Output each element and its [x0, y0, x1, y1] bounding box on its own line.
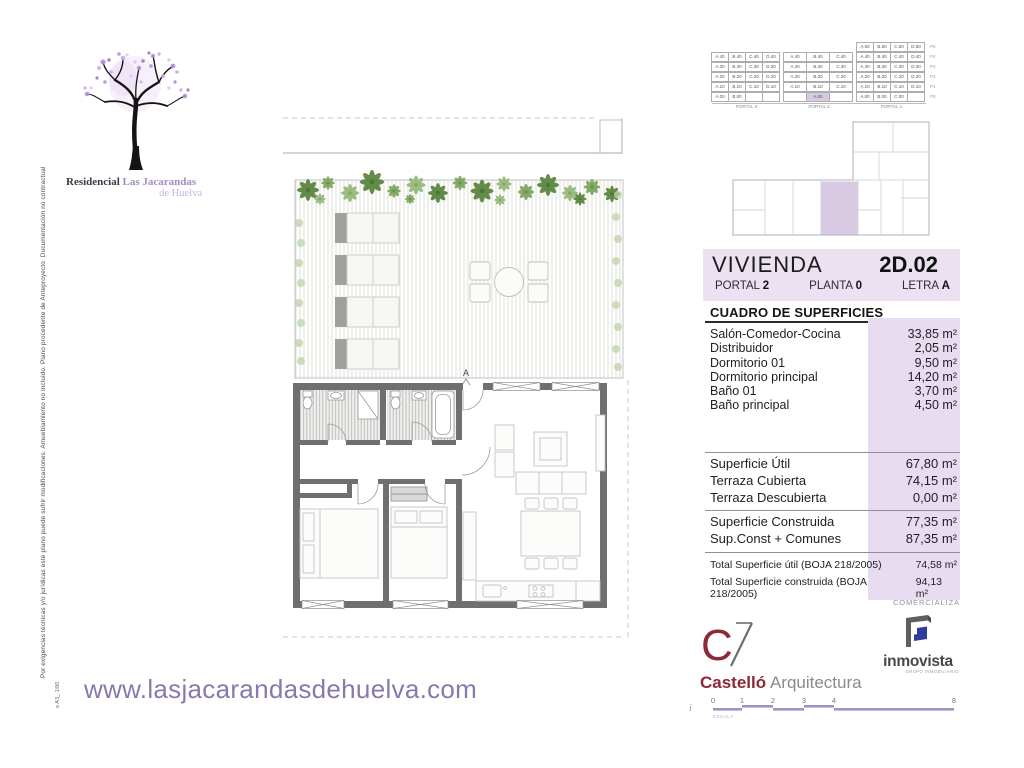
- svg-text:2: 2: [771, 696, 775, 705]
- arquitectura-name: Arquitectura: [770, 673, 862, 692]
- totals: Total Superficie útil (BOJA 218/2005)74,…: [710, 559, 957, 592]
- unit-cell: [745, 92, 763, 102]
- unit-cell: B.30: [873, 62, 891, 72]
- inmovista-mark-icon: [900, 612, 936, 650]
- unit-cell: [783, 42, 807, 52]
- unit-cell: [829, 92, 853, 102]
- floor-label: P0: [930, 92, 936, 102]
- table-row: Superficie Útil67,80 m²: [710, 456, 957, 473]
- unit-cell: D.40: [907, 52, 925, 62]
- unit-cell: D.30: [907, 62, 925, 72]
- logo-text: Residencial Las Jacarandas: [66, 176, 208, 188]
- unit-cell: A.20: [856, 72, 874, 82]
- legal-disclaimer: Por exigencias técnicas y/o jurídicas es…: [40, 78, 47, 678]
- floor-label: P4: [930, 52, 936, 62]
- highlighted-unit: [821, 182, 858, 235]
- useful-surface-summary: Superficie Útil67,80 m² Terraza Cubierta…: [710, 456, 957, 507]
- table-row: Terraza Cubierta74,15 m²: [710, 473, 957, 490]
- unit-cell: A.50: [856, 42, 874, 52]
- vivienda-code: 2D.02: [879, 252, 938, 278]
- website-url: www.lasjacarandasdehuelva.com: [84, 674, 477, 705]
- unit-cell: [783, 92, 807, 102]
- unit-cell: [806, 42, 830, 52]
- unit-cell: A.30: [711, 62, 729, 72]
- unit-cell: D.20: [907, 72, 925, 82]
- table-row: Total Superficie útil (BOJA 218/2005)74,…: [710, 559, 957, 576]
- table-row: Dormitorio principal14,20 m²: [710, 370, 957, 384]
- unit-cell: [711, 42, 729, 52]
- divider: [705, 452, 960, 453]
- floor-plan-drawing: A: [270, 95, 650, 655]
- unit-cell: A.40: [783, 52, 807, 62]
- unit-cell: A.00: [856, 92, 874, 102]
- svg-text:1: 1: [740, 696, 744, 705]
- unit-cell: B.30: [728, 62, 746, 72]
- residencial-logo: Residencial Las Jacarandas de Huelva: [66, 48, 208, 199]
- room-surfaces: Salón-Comedor-Cocina33,85 m² Distribuido…: [710, 327, 957, 413]
- table-row: Terraza Descubierta0,00 m²: [710, 490, 957, 507]
- svg-text:3: 3: [802, 696, 806, 705]
- inmovista-logo: inmovista GRUPO INMOBILIARIO: [874, 612, 962, 674]
- unit-cell: B.40: [728, 52, 746, 62]
- portal-label: PORTAL 1: [857, 104, 926, 109]
- floor-label: P3: [930, 62, 936, 72]
- unit-cell: C.20: [829, 72, 853, 82]
- unit-cell: C.00: [890, 92, 908, 102]
- table-row: Salón-Comedor-Cocina33,85 m²: [710, 327, 957, 341]
- table-row: Dormitorio 019,50 m²: [710, 356, 957, 370]
- unit-cell: A.00: [806, 92, 830, 102]
- unit-cell: B.20: [873, 72, 891, 82]
- unit-cell: B.50: [873, 42, 891, 52]
- unit-cell: [762, 92, 780, 102]
- unit-cell: C.50: [890, 42, 908, 52]
- unit-cell: C.20: [745, 72, 763, 82]
- portal-label: PORTAL 3: [712, 104, 781, 109]
- unit-cell: B.20: [806, 72, 830, 82]
- unit-cell: C.40: [829, 52, 853, 62]
- unit-cell: [829, 42, 853, 52]
- unit-cell: A.40: [711, 52, 729, 62]
- svg-text:C: C: [701, 621, 733, 668]
- unit-cell: [762, 42, 780, 52]
- table-row: Total Superficie construida (BOJA 218/20…: [710, 576, 957, 593]
- floor-label: P1: [930, 82, 936, 92]
- floor-plan-sheet: Por exigencias técnicas y/o jurídicas es…: [0, 0, 1024, 768]
- svg-text:8: 8: [952, 696, 956, 705]
- unit-cell: C.10: [829, 82, 853, 92]
- planta-group: PLANTA 0: [809, 280, 862, 292]
- svg-text:i: i: [689, 703, 692, 714]
- unit-cell: C.30: [829, 62, 853, 72]
- table-row: Sup.Const + Comunes87,35 m²: [710, 531, 957, 548]
- unit-cell: B.10: [806, 82, 830, 92]
- unit-cell: A.30: [856, 62, 874, 72]
- unit-cell: B.40: [873, 52, 891, 62]
- unit-cell: D.20: [762, 72, 780, 82]
- floor-label: P2: [930, 72, 936, 82]
- unit-cell: D.40: [762, 52, 780, 62]
- table-row: Baño principal4,50 m²: [710, 398, 957, 412]
- unit-cell: B.40: [806, 52, 830, 62]
- unit-cell: A.30: [783, 62, 807, 72]
- vivienda-label: VIVIENDA: [712, 252, 823, 278]
- table-row: Distribuidor2,05 m²: [710, 341, 957, 355]
- unit-cell: C.40: [890, 52, 908, 62]
- unit-cell: A.20: [783, 72, 807, 82]
- letra-group: LETRA A: [902, 280, 950, 292]
- unit-cell: C.10: [890, 82, 908, 92]
- unit-cell: B.10: [873, 82, 891, 92]
- terrace: [295, 180, 623, 378]
- logo-subtext: de Huelva: [66, 188, 208, 199]
- table-row: Superficie Construida77,35 m²: [710, 514, 957, 531]
- surfaces-table-title: CUADRO DE SUPERFICIES: [710, 305, 883, 320]
- unit-cell: D.10: [762, 82, 780, 92]
- jacaranda-tree-icon: [75, 48, 199, 174]
- castello-logo: C Castelló Arquitectura: [700, 620, 878, 693]
- unit-cell: B.30: [806, 62, 830, 72]
- unit-cell: B.00: [873, 92, 891, 102]
- unit-cell: C.10: [745, 82, 763, 92]
- built-surface-summary: Superficie Construida77,35 m² Sup.Const …: [710, 514, 957, 548]
- unit-header: VIVIENDA 2D.02 PORTAL 2 PLANTA 0 LETRA A: [703, 249, 960, 301]
- unit-cell: [728, 42, 746, 52]
- svg-text:4: 4: [832, 696, 836, 705]
- unit-cell: A.00: [711, 92, 729, 102]
- svg-text:0: 0: [711, 696, 715, 705]
- sheet-code: e A3_ 1/80: [55, 648, 61, 708]
- divider: [705, 510, 960, 511]
- unit-cell: D.50: [907, 42, 925, 52]
- unit-cell: [745, 42, 763, 52]
- castello-name: Castelló: [700, 673, 766, 692]
- unit-location-matrix: A.50B.50C.50D.50P5A.40B.40C.40D.40A.40B.…: [712, 42, 936, 109]
- comercializa-label: COMERCIALIZA: [705, 598, 960, 607]
- inmovista-name: inmovista: [874, 655, 962, 669]
- unit-cell: A.10: [783, 82, 807, 92]
- table-row: Baño 013,70 m²: [710, 384, 957, 398]
- castello-mark-icon: C: [700, 620, 758, 668]
- portal-label: PORTAL 2: [781, 104, 857, 109]
- divider: [705, 552, 960, 553]
- unit-cell: B.10: [728, 82, 746, 92]
- unit-cell: D.30: [762, 62, 780, 72]
- unit-cell: C.40: [745, 52, 763, 62]
- unit-cell: C.20: [890, 72, 908, 82]
- portal-group: PORTAL 2: [715, 280, 769, 292]
- key-plan: [703, 118, 960, 248]
- svg-text:ESCALA: ESCALA: [713, 714, 734, 719]
- section-marker: A: [462, 368, 470, 385]
- scale-bar: i 0 1 2 3 4 8 ESCALA: [683, 694, 963, 724]
- unit-cell: A.10: [856, 82, 874, 92]
- unit-cell: B.20: [728, 72, 746, 82]
- unit-cell: A.40: [856, 52, 874, 62]
- svg-text:A: A: [463, 368, 469, 378]
- unit-cell: A.10: [711, 82, 729, 92]
- unit-cell: [907, 92, 925, 102]
- unit-cell: C.30: [745, 62, 763, 72]
- floor-label: P5: [930, 42, 936, 52]
- unit-cell: B.00: [728, 92, 746, 102]
- unit-cell: D.10: [907, 82, 925, 92]
- unit-cell: C.30: [890, 62, 908, 72]
- unit-cell: A.20: [711, 72, 729, 82]
